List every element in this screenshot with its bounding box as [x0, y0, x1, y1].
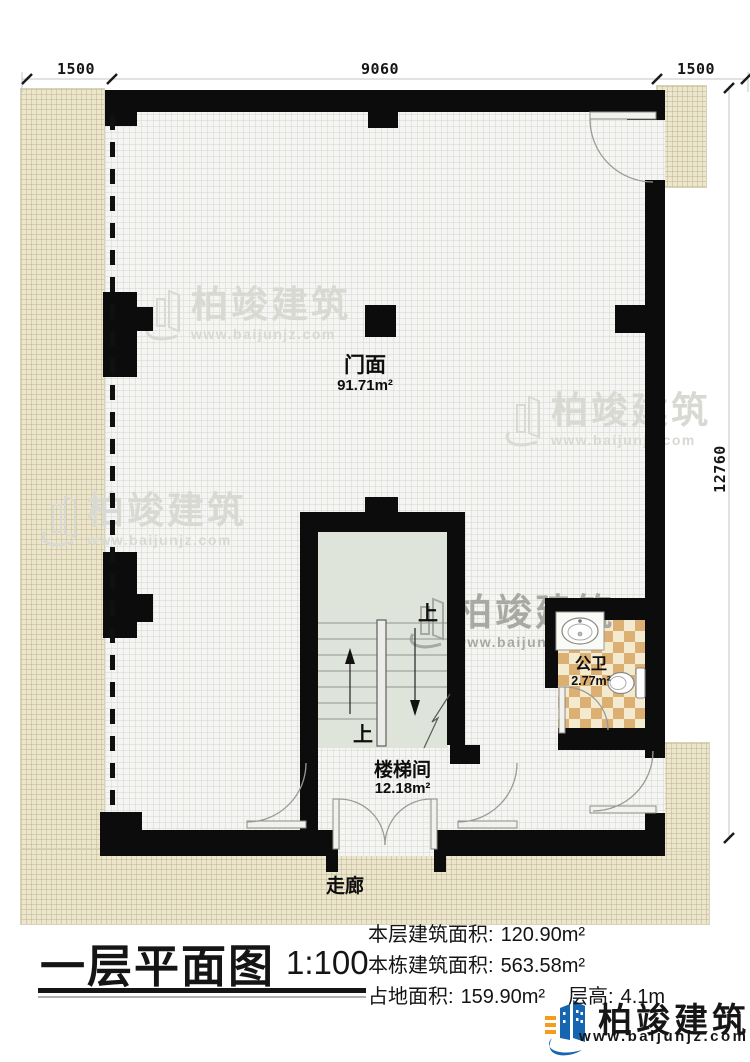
room-name: 走廊	[305, 876, 385, 897]
stat-footprint-and-height: 占地面积: 159.90m² 层高: 4.1m	[368, 982, 665, 1013]
column-left-a-cap	[137, 307, 153, 331]
entrance-jamb-left	[326, 835, 338, 872]
toilet-wall-left	[545, 608, 558, 688]
stat-label: 本层建筑面积:	[368, 920, 494, 951]
dim-top-left: 1500	[46, 60, 106, 78]
room-area: 2.77m²	[560, 674, 622, 688]
column-left-b-cap	[137, 594, 153, 622]
wall-bottom-right	[434, 830, 665, 856]
room-name: 楼梯间	[350, 760, 455, 781]
stair-up-label-top: 上	[408, 597, 448, 626]
wall-right-main	[645, 180, 665, 758]
toilet-wall-top	[545, 598, 645, 620]
watermark-brand: 柏竣建筑	[551, 392, 711, 431]
room-label-stairwell: 楼梯间 12.18m²	[350, 760, 455, 798]
title-underline-thin	[38, 996, 366, 998]
stat-value: 159.90m²	[461, 982, 546, 1013]
stat-label: 层高:	[568, 982, 614, 1013]
watermark-brand: 柏竣建筑	[191, 286, 351, 325]
room-label-toilet: 公卫 2.77m²	[560, 656, 622, 688]
wall-bottom-left-corner	[100, 812, 142, 856]
dim-right-side: 12760	[711, 419, 729, 519]
column-left-b	[103, 552, 137, 638]
entrance-jamb-right	[434, 835, 446, 872]
storefront-dashed-line	[110, 115, 115, 812]
room-area: 91.71m²	[315, 378, 415, 395]
stair-up-label-bottom: 上	[345, 718, 381, 747]
wall-top	[105, 90, 665, 112]
stat-value: 563.58m²	[501, 951, 586, 982]
watermark: 柏竣建筑 www.baijunjz.com	[36, 492, 247, 550]
stairwell-column-top	[365, 497, 398, 512]
watermark-logo-icon	[36, 492, 82, 550]
wall-right-column	[615, 305, 645, 333]
watermark-logo-icon	[500, 392, 546, 450]
plan-scale: 1:100	[286, 944, 369, 982]
watermark: 柏竣建筑 www.baijunjz.com	[140, 286, 351, 344]
brand-url: www.baijunjz.com	[579, 1028, 748, 1045]
stairwell-wall-left	[300, 512, 318, 856]
stat-value: 120.90m²	[501, 920, 586, 951]
watermark-url: www.baijunjz.com	[551, 432, 711, 448]
column-left-a	[103, 292, 137, 377]
column-freestanding	[365, 305, 396, 337]
stat-floor-area: 本层建筑面积: 120.90m²	[368, 920, 665, 951]
room-area: 12.18m²	[350, 781, 455, 798]
wall-right-upper	[645, 90, 665, 120]
stat-value: 4.1m	[621, 982, 665, 1013]
stat-building-area: 本栋建筑面积: 563.58m²	[368, 951, 665, 982]
dim-top-right: 1500	[666, 60, 726, 78]
area-stats: 本层建筑面积: 120.90m² 本栋建筑面积: 563.58m² 占地面积: …	[368, 920, 665, 1013]
watermark: 柏竣建筑 www.baijunjz.com	[500, 392, 711, 450]
room-name: 门面	[315, 354, 415, 378]
dim-top-middle: 9060	[345, 60, 415, 78]
room-label-shop: 门面 91.71m²	[315, 354, 415, 394]
toilet-wall-bottom	[558, 728, 645, 750]
room-label-corridor: 走廊	[305, 876, 385, 897]
title-underline-thick	[38, 988, 366, 993]
floor-plan-canvas: 柏竣建筑 www.baijunjz.com 柏竣建筑 www.baijunjz.…	[0, 0, 750, 1062]
stat-label: 占地面积:	[368, 982, 454, 1013]
stairwell-wall-top	[300, 512, 465, 532]
stairwell-wall-right	[447, 512, 465, 745]
stat-label: 本栋建筑面积:	[368, 951, 494, 982]
watermark-url: www.baijunjz.com	[455, 634, 615, 650]
watermark-url: www.baijunjz.com	[191, 326, 351, 342]
wall-top-middle-column	[368, 112, 398, 128]
room-name: 公卫	[560, 656, 622, 674]
plan-title: 一层平面图	[40, 930, 275, 995]
